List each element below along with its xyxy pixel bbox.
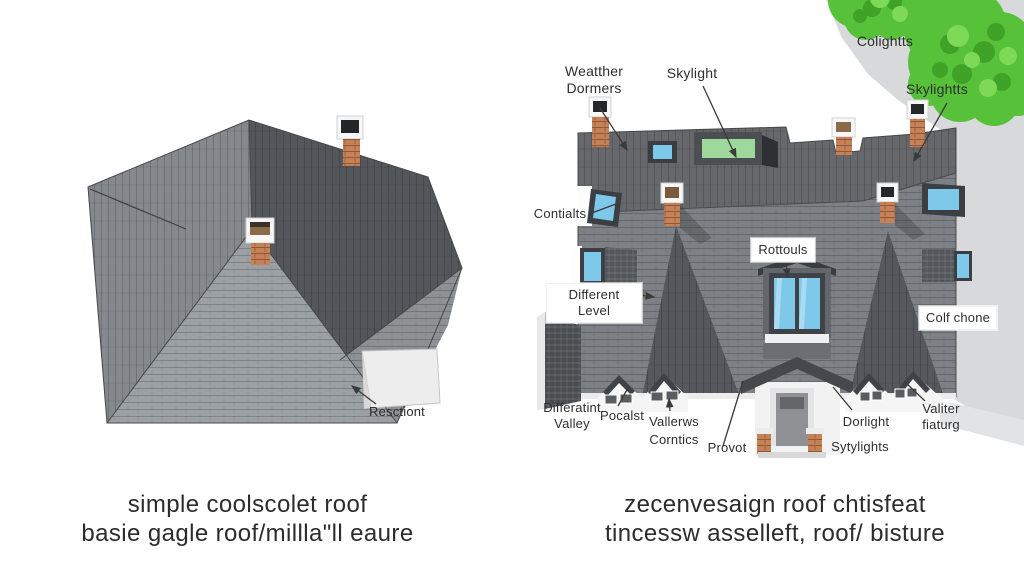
label-skylight: Skylight: [658, 65, 726, 82]
skylight-green-panel: [694, 132, 778, 168]
label-provot: Provot: [704, 440, 750, 456]
side-wall-box: [362, 349, 440, 409]
left-caption: simple coolscolet roof basie gagle roof/…: [40, 490, 455, 548]
label-weather-dormers: Weatther Dormers: [556, 63, 632, 97]
skylight-window: [648, 141, 677, 163]
label-line: Valiter: [915, 401, 967, 417]
skylight-window: [922, 183, 965, 217]
label-line: Dormers: [556, 80, 632, 97]
label-pocalst: Pocalst: [598, 408, 646, 424]
label-colf-chone: Colf chone: [919, 306, 997, 330]
caption-line: basie gagle roof/millla"ll eaure: [40, 519, 455, 548]
label-rottouls: Rottouls: [751, 238, 815, 262]
label-colightts: Colightts: [841, 33, 929, 50]
caption-line: tincessw asselleft, roof/ bisture: [560, 519, 990, 548]
caption-line: zecenvesaign roof chtisfeat: [560, 490, 990, 519]
chimney: [907, 100, 928, 147]
label-dorlight: Dorlight: [839, 414, 893, 430]
dormer-window: [922, 249, 972, 282]
label-line: fiaturg: [915, 417, 967, 433]
label-contialts: Contialts: [528, 206, 592, 222]
label-resctiont: Resctiont: [369, 404, 441, 420]
chimney: [589, 97, 611, 147]
label-vallerws: Vallerws: [648, 414, 700, 430]
label-corntics: Corntics: [645, 432, 703, 448]
left-roof-illustration: [88, 116, 462, 423]
label-skylightts: Skylightts: [896, 81, 978, 98]
label-sytylights: Sytylights: [827, 439, 893, 455]
label-valiter-fiaturg: Valiter fiaturg: [915, 401, 967, 433]
center-dormer: [758, 255, 836, 359]
label-different-level: Different Level: [546, 283, 642, 323]
caption-line: simple coolscolet roof: [40, 490, 455, 519]
label-line: Weatther: [556, 63, 632, 80]
roof-comparison-figure: Resctiont Weatther Dormers Skylight Coli…: [0, 0, 1024, 585]
stairs-structure: [537, 312, 581, 410]
right-caption: zecenvesaign roof chtisfeat tincessw ass…: [560, 490, 990, 548]
